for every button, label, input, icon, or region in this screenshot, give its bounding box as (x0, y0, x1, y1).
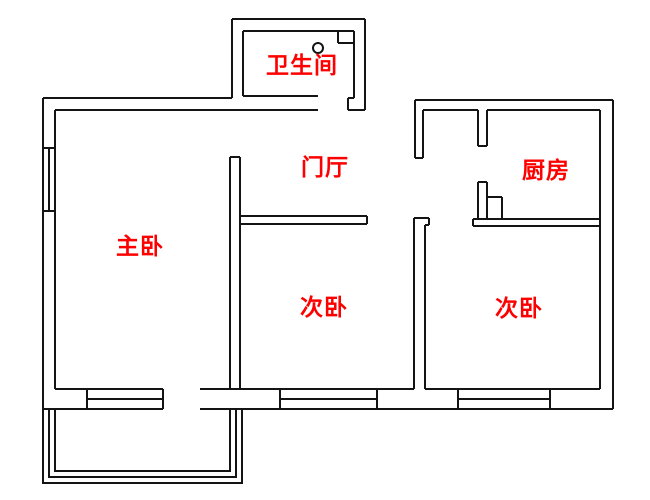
room-label-master-bedroom: 主卧 (116, 227, 164, 261)
room-label-second-bedroom-middle: 次卧 (300, 288, 348, 322)
balcony-railing (49, 409, 236, 477)
room-label-entrance-hall: 门厅 (301, 148, 349, 182)
floor-plan-page: 卫生间门厅厨房主卧次卧次卧 (0, 0, 650, 500)
balcony-railing (55, 409, 230, 471)
room-label-second-bedroom-right: 次卧 (495, 289, 543, 323)
room-label-bathroom: 卫生间 (266, 46, 338, 80)
room-label-kitchen: 厨房 (522, 151, 570, 185)
